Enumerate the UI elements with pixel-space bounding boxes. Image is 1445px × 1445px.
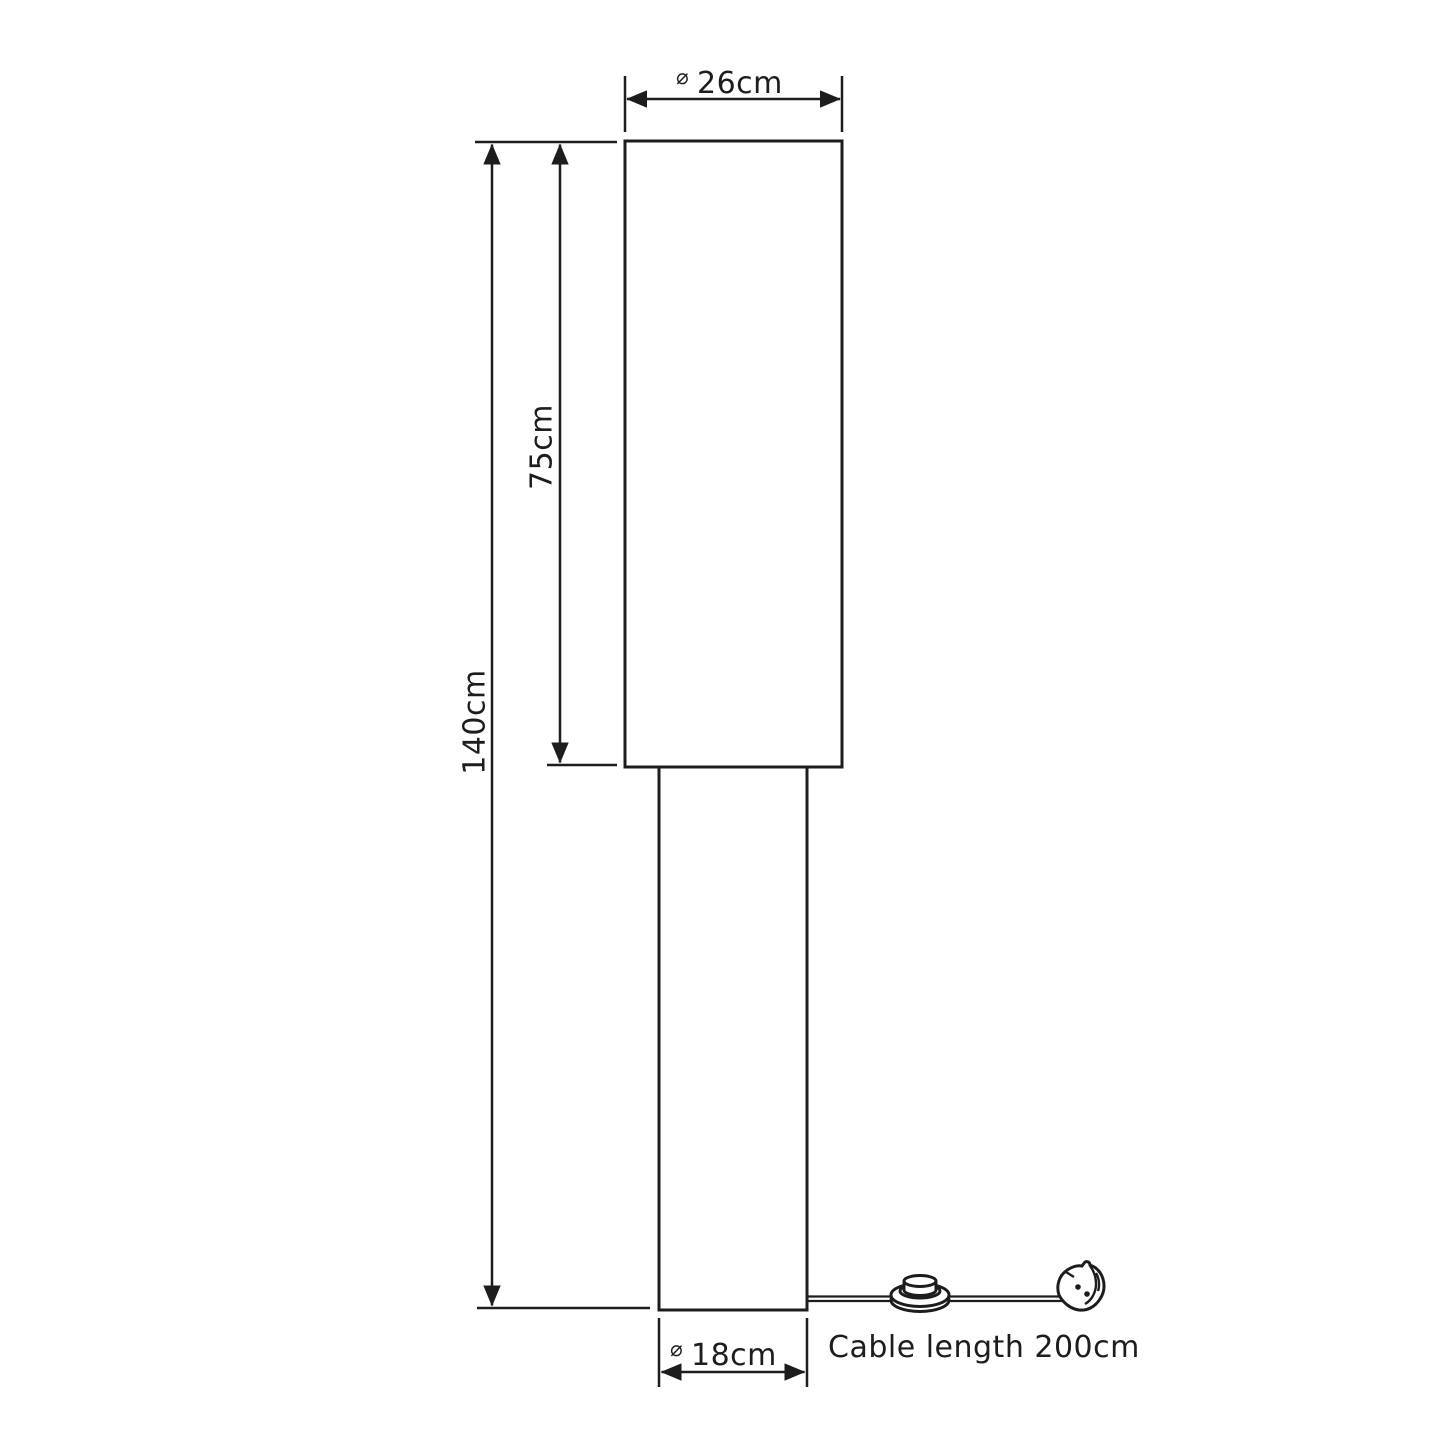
switch-button-top	[904, 1276, 936, 1287]
lamp-shade	[625, 141, 842, 767]
plug-pin-dot	[1084, 1291, 1090, 1297]
shade-diameter-symbol: ⌀	[676, 65, 689, 89]
dim-shade-height: 75cm	[525, 145, 618, 766]
total-height-label: 140cm	[458, 669, 493, 774]
uk-plug-icon	[1058, 1262, 1104, 1311]
shade-diameter-label: 26cm	[697, 66, 783, 101]
foot-switch-icon	[891, 1276, 949, 1312]
dim-total-height: 140cm	[458, 142, 651, 1308]
cable-length-label: Cable length 200cm	[828, 1330, 1140, 1365]
dim-base-diameter: ⌀ 18cm	[659, 1318, 807, 1387]
base-diameter-label: 18cm	[691, 1338, 777, 1373]
diagram-canvas: ⌀ 26cm 75cm 140cm ⌀ 18cm	[0, 0, 1445, 1445]
dimension-diagram: ⌀ 26cm 75cm 140cm ⌀ 18cm	[0, 0, 1445, 1445]
base-diameter-symbol: ⌀	[670, 1337, 683, 1361]
dim-shade-diameter: ⌀ 26cm	[625, 65, 842, 132]
lamp-pole	[659, 767, 807, 1310]
plug-pin-dot	[1075, 1284, 1081, 1290]
shade-height-label: 75cm	[525, 404, 560, 490]
